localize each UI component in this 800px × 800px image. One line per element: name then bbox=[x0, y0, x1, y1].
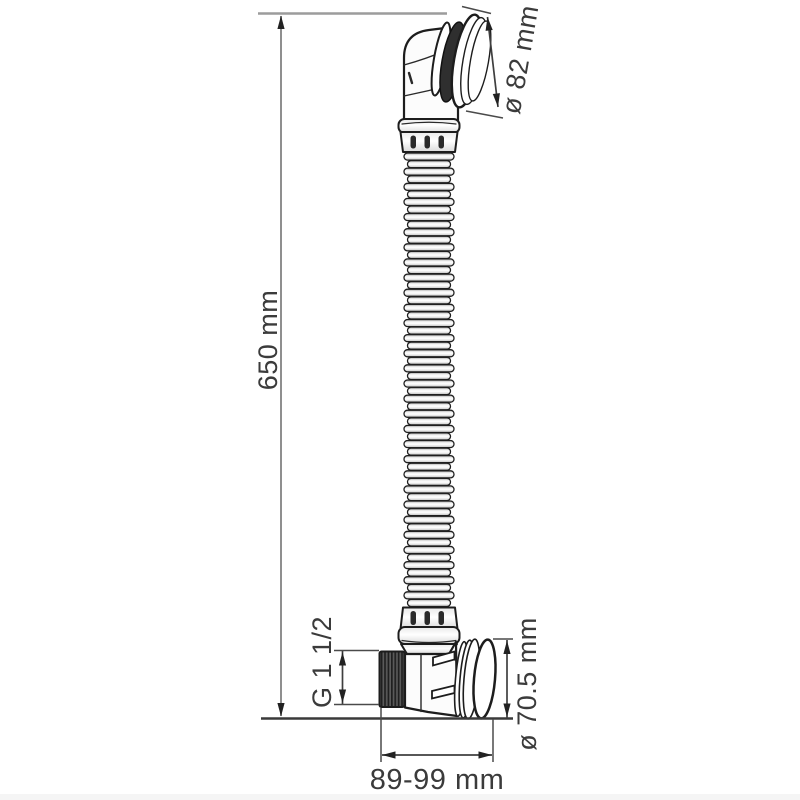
label-thread-size: G 1 1/2 bbox=[307, 616, 337, 708]
thread-section bbox=[380, 652, 405, 708]
technical-drawing-page: ø 82 mm 650 mm bbox=[0, 0, 800, 800]
technical-drawing-canvas: ø 82 mm 650 mm bbox=[0, 0, 800, 800]
union-nut-bottom bbox=[399, 608, 460, 645]
label-length-range: 89-99 mm bbox=[370, 764, 505, 796]
nut-slots-bottom bbox=[411, 611, 445, 625]
nut-slots-top bbox=[411, 136, 445, 149]
label-flange-diameter: ø 70.5 mm bbox=[512, 617, 542, 751]
union-nut-top bbox=[399, 119, 460, 152]
flexible-hose bbox=[404, 153, 454, 607]
label-overall-height: 650 mm bbox=[253, 290, 283, 391]
overflow-elbow-body bbox=[380, 642, 458, 716]
